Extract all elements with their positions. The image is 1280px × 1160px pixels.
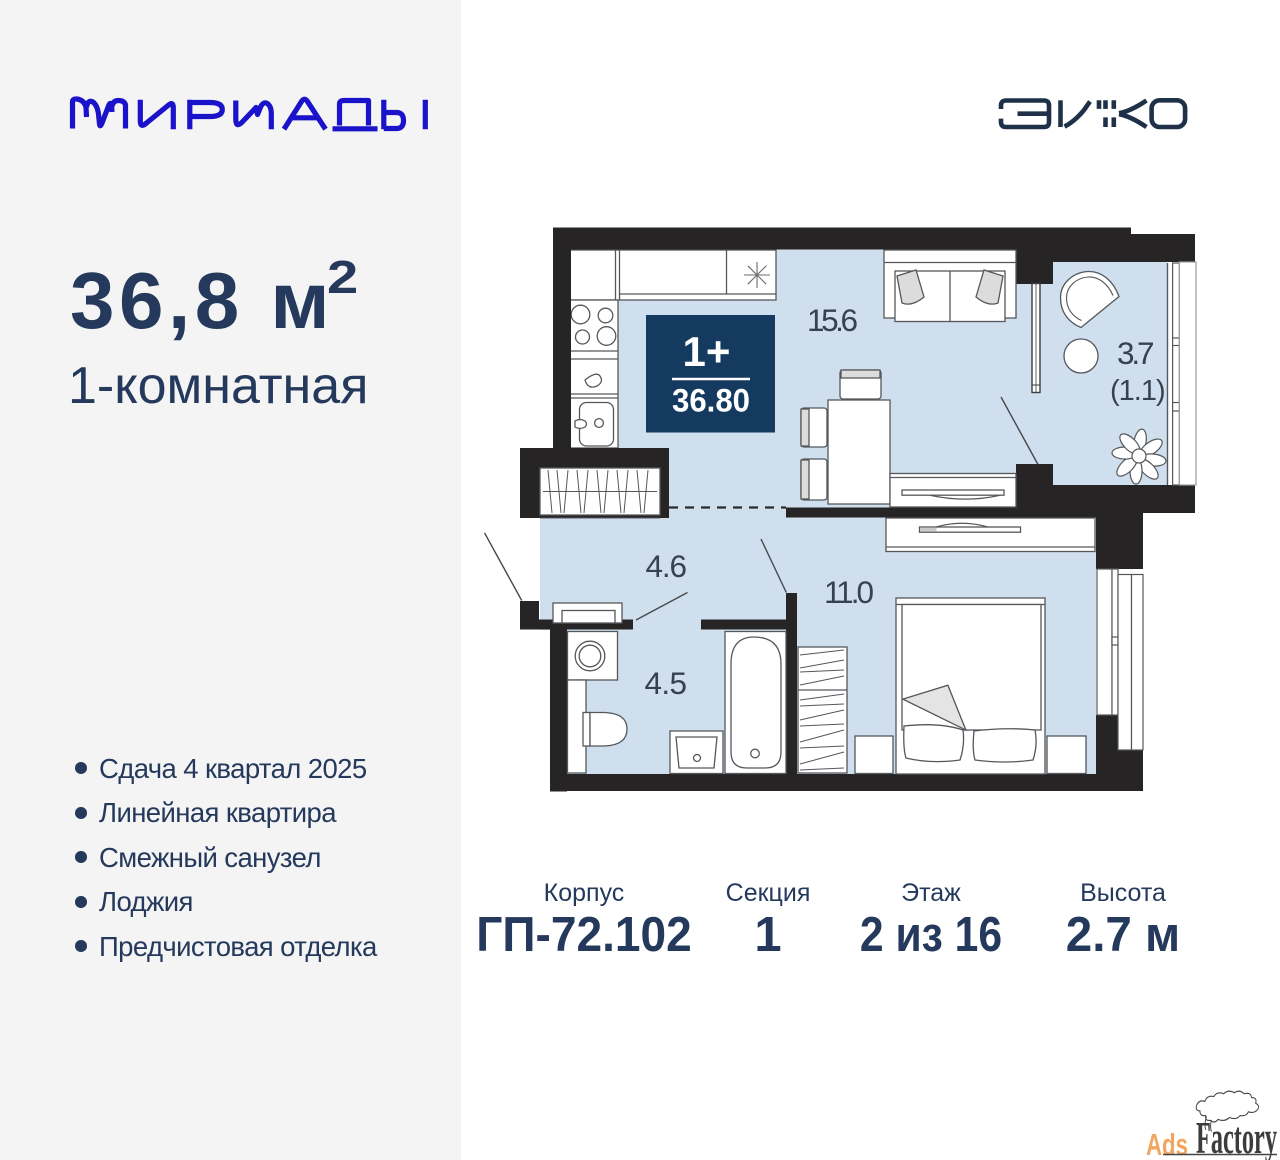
svg-text:1+: 1+	[683, 328, 731, 375]
svg-text:3.7: 3.7	[1117, 335, 1155, 371]
svg-text:4.6: 4.6	[646, 548, 688, 584]
svg-text:15.6: 15.6	[807, 302, 858, 338]
svg-text:36.80: 36.80	[672, 383, 750, 419]
svg-text:Factory: Factory	[1196, 1112, 1277, 1160]
svg-text:4.5: 4.5	[645, 665, 688, 701]
svg-text:(1.1): (1.1)	[1110, 375, 1165, 407]
svg-text:11.0: 11.0	[824, 574, 874, 610]
